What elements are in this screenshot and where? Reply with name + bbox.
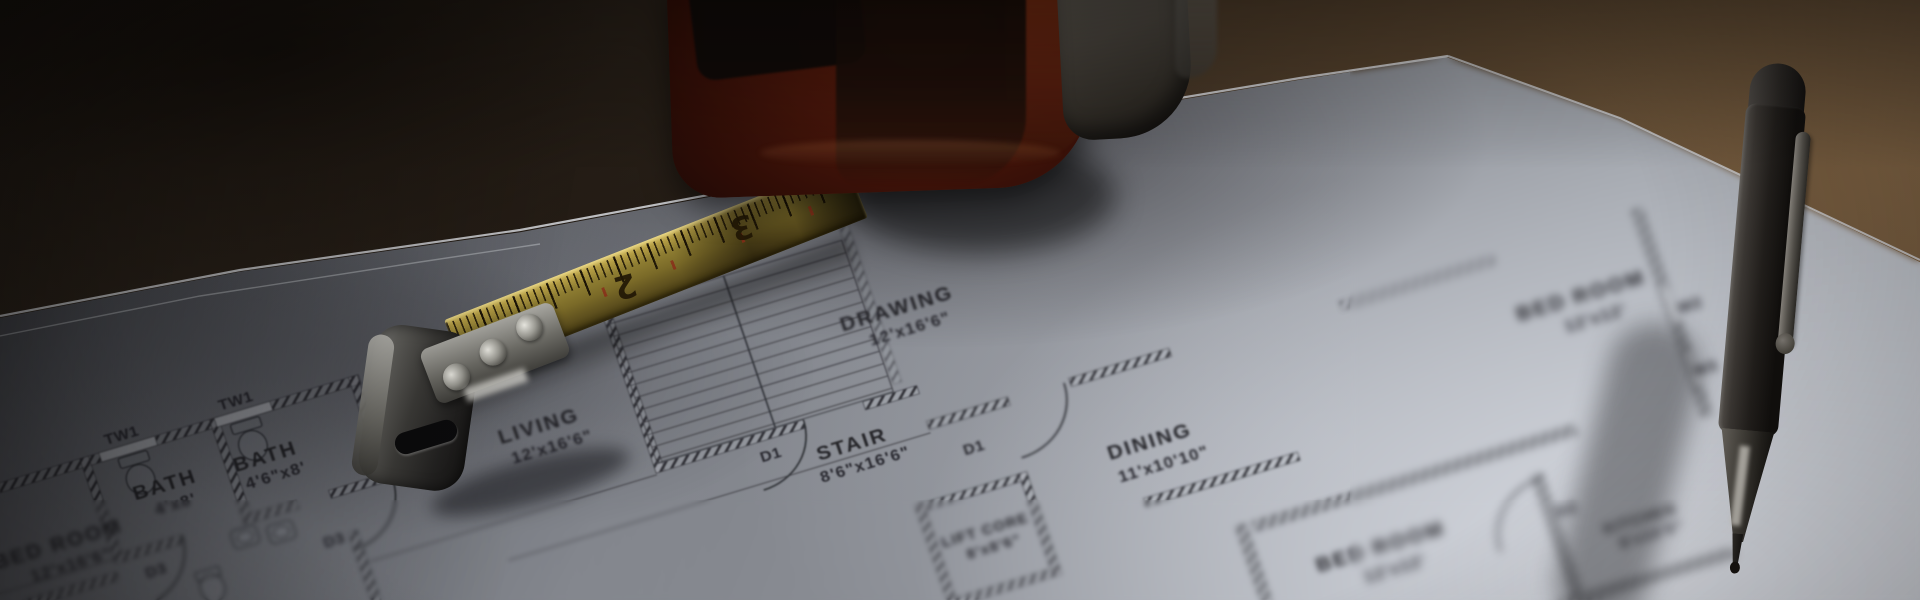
wall-segment	[863, 386, 919, 410]
tape-measure-body	[640, 0, 1240, 220]
rivet	[476, 335, 511, 370]
rivet	[512, 310, 547, 345]
door-label-d1a: D1	[758, 444, 784, 466]
tape-body-grip-edge	[1175, 0, 1217, 78]
tape-body-rim-light	[760, 140, 1060, 166]
tape-measure-end-hook	[358, 316, 574, 512]
wall-segment	[1069, 348, 1172, 386]
door-arc	[1002, 383, 1083, 458]
wall-segment	[654, 420, 806, 473]
pen-ballpoint	[1729, 561, 1740, 574]
blade-number-2: 2	[610, 265, 642, 308]
tape-body-rubber-grip	[1055, 0, 1194, 141]
door-label-d1b: D1	[961, 437, 987, 459]
pen-clip-ball	[1775, 332, 1796, 355]
wall-segment	[927, 397, 1010, 429]
photo-scene: TW1 TW1 BATH 4'x8' BATH 4'6"x8' D3 D3 ST…	[0, 0, 1920, 600]
